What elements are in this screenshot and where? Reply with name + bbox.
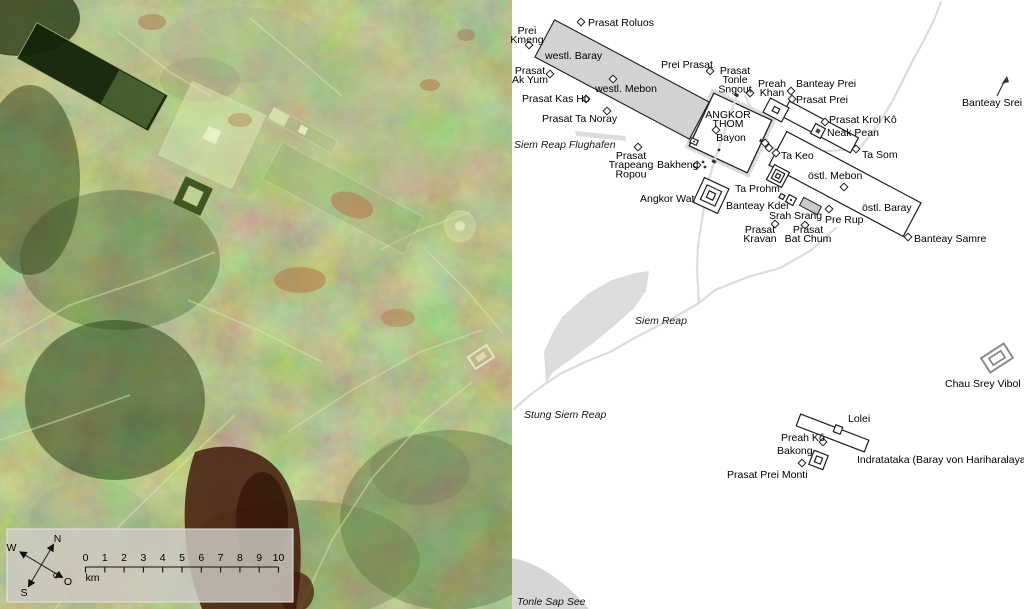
label-ta-keo: Ta Keo — [781, 150, 814, 162]
label-bakong: Bakong — [777, 445, 813, 457]
scale-unit-label: km — [86, 572, 100, 584]
label-ostl-baray: östl. Baray — [862, 202, 912, 214]
scale-tick-label: 2 — [121, 552, 127, 564]
scale-tick-label: 8 — [237, 552, 243, 564]
label-prei-prasat: Prei Prasat — [661, 59, 713, 71]
label-ostl-mebon: östl. Mebon — [808, 170, 862, 182]
label-banteay-samre: Banteay Samre — [914, 233, 987, 245]
label-siem-reap: Siem Reap — [635, 315, 687, 327]
compass-label-west: W — [7, 542, 17, 554]
scale-tick-label: 1 — [102, 552, 108, 564]
angkor-figure-canvas: N S W O 012345678910 km — [0, 0, 1024, 609]
map-legend-overlay: N S W O 012345678910 km — [7, 529, 293, 602]
label-chau-srey-vibol: Chau Srey Vibol — [945, 378, 1021, 390]
label-westl-baray: westl. Baray — [544, 50, 603, 62]
label-siem-reap-flughafen: Siem Reap Flughafen — [514, 139, 616, 151]
satellite-image: N S W O 012345678910 km — [0, 0, 560, 609]
marker-bayon-dot — [718, 149, 721, 152]
label-neak-pean: Neak Pean — [827, 127, 879, 139]
label-prasat-ta-noray: Prasat Ta Noray — [542, 113, 618, 125]
scale-tick-label: 10 — [273, 552, 285, 564]
label-stung-siem-reap: Stung Siem Reap — [524, 409, 606, 421]
temple-map: Prasat RoluosPreiKmengwestl. BarayPrasat… — [510, 0, 1024, 609]
label-banteay-prei: Banteay Prei — [796, 78, 856, 90]
satellite-round-feature — [445, 211, 475, 241]
scale-tick-label: 4 — [160, 552, 166, 564]
label-prasat-kas-ho: Prasat Kas Ho — [522, 93, 590, 105]
compass-label-south: S — [20, 587, 27, 599]
compass-label-north: N — [54, 533, 62, 545]
label-banteay-srei: Banteay Srei — [962, 97, 1022, 109]
label-prasat-prei: Prasat Prei — [796, 94, 848, 106]
label-prasat-tonle-sngout: PrasatTonleSngout — [718, 65, 751, 95]
label-prasat-roluos: Prasat Roluos — [588, 17, 654, 29]
label-lolei: Lolei — [848, 413, 870, 425]
label-srah-srang: Srah Srang — [769, 210, 822, 222]
label-bakheng: Bakheng — [657, 159, 699, 171]
label-pre-rup: Pre Rup — [825, 214, 864, 226]
label-ta-prohm: Ta Prohm — [735, 183, 780, 195]
scale-tick-label: 9 — [256, 552, 262, 564]
angkor-map-figure: N S W O 012345678910 km — [0, 0, 1024, 609]
label-prasat-ak-yum: PrasatAk Yum — [512, 65, 548, 86]
label-prasat-krol-ko: Prasat Krol Kô — [829, 114, 897, 126]
scale-tick-label: 5 — [179, 552, 185, 564]
marker-bakheng-dot-2 — [704, 166, 707, 169]
label-preah-ko: Preah Kô — [781, 432, 825, 444]
scale-tick-label: 3 — [140, 552, 146, 564]
label-ta-som: Ta Som — [862, 149, 898, 161]
scale-tick-label: 0 — [83, 552, 89, 564]
scale-tick-label: 7 — [218, 552, 224, 564]
label-tonle-sap-see: Tonle Sap See — [517, 596, 586, 608]
label-prasat-prei-monti: Prasat Prei Monti — [727, 469, 808, 481]
marker-bakheng-dot-1 — [702, 161, 705, 164]
label-bayon: Bayon — [716, 132, 746, 144]
label-prasat-kravan: PrasatKravan — [743, 224, 776, 245]
label-preah-khan: PreahKhan — [758, 78, 786, 99]
scale-tick-label: 6 — [198, 552, 204, 564]
label-westl-mebon: westl. Mebon — [594, 83, 657, 95]
label-angkor-wat: Angkor Wat — [640, 193, 695, 205]
compass-label-east: O — [64, 576, 72, 588]
legend-box — [7, 529, 293, 602]
label-indratataka: Indratataka (Baray von Hariharalaya) — [857, 454, 1024, 466]
